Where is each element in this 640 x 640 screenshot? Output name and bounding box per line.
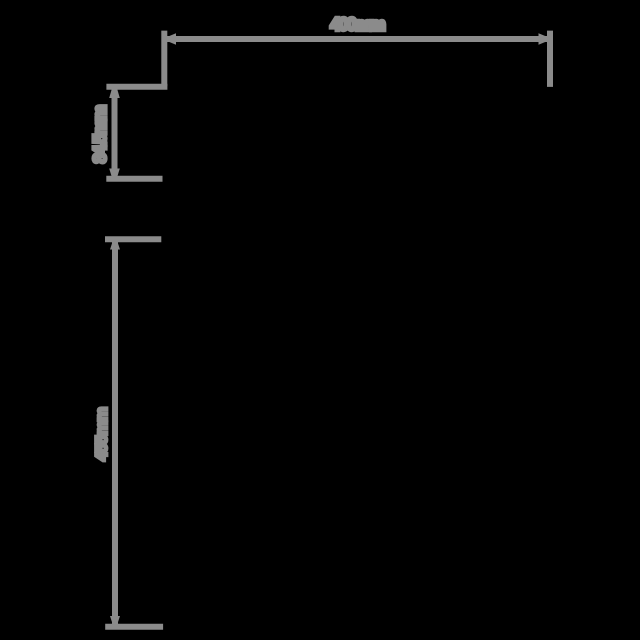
svg-text:455mm: 455mm: [92, 407, 111, 461]
svg-text:400mm: 400mm: [330, 14, 385, 35]
svg-text:84.5mm: 84.5mm: [89, 105, 110, 163]
